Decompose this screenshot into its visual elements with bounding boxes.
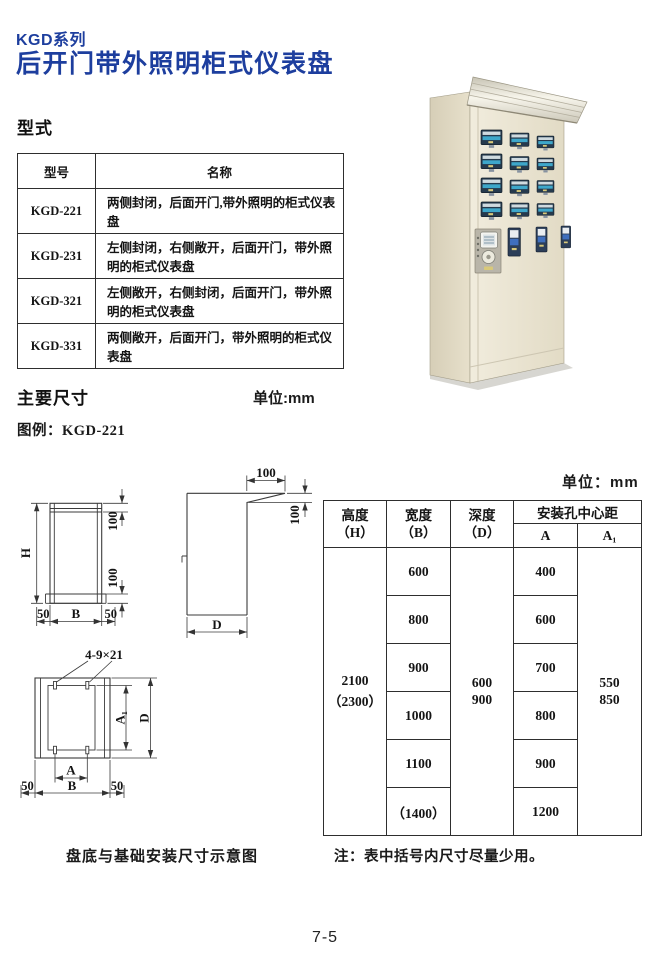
dim-table-header-row: 高度（H） 宽度（B） 深度（D） 安装孔中心距	[324, 501, 642, 524]
dim-label-50: 50	[105, 607, 118, 621]
a1-col-header: A₁	[578, 524, 642, 548]
width-col-header: 宽度（B）	[387, 501, 451, 548]
a-cell: 600	[514, 596, 578, 644]
dim-label-100: 100	[287, 505, 302, 525]
width-cell: 900	[387, 644, 451, 692]
recorder-instrument	[475, 229, 501, 273]
legend-label: 图例：KGD-221	[17, 419, 125, 440]
a-col-header: A	[514, 524, 578, 548]
table-row: KGD-331 两侧敞开，后面开门，带外照明的柜式仪表盘	[18, 324, 344, 369]
dim-label-B: B	[68, 778, 77, 793]
dim-label-50: 50	[37, 607, 50, 621]
dim-label-100: 100	[105, 511, 120, 531]
dim-label-100: 100	[105, 568, 120, 588]
width-cell: 1000	[387, 692, 451, 740]
a-cell: 900	[514, 740, 578, 788]
type-section-heading: 型式	[17, 114, 53, 139]
dim-label-B: B	[71, 606, 80, 621]
unit-label: 单位:mm	[253, 387, 315, 408]
dim-label-50: 50	[21, 779, 34, 793]
name-cell: 左侧敞开，右侧封闭，后面开门，带外照明的柜式仪表盘	[96, 279, 344, 324]
front-view-drawing: H 100 100 50 B 50	[18, 489, 128, 626]
plan-view-drawing: 4-9×21 A₁ D A 50 B 50	[21, 647, 157, 798]
width-cell: （1400）	[387, 788, 451, 836]
page-title: 后开门带外照明柜式仪表盘	[16, 44, 334, 80]
width-cell: 800	[387, 596, 451, 644]
name-cell: 两侧封闭，后面开门,带外照明的柜式仪表盘	[96, 189, 344, 234]
dim-label-H: H	[18, 548, 33, 558]
table-note: 注：表中括号内尺寸尽量少用。	[334, 845, 544, 866]
a-cell: 1200	[514, 788, 578, 836]
width-cell: 1100	[387, 740, 451, 788]
table-row: KGD-221 两侧封闭，后面开门,带外照明的柜式仪表盘	[18, 189, 344, 234]
model-cell: KGD-321	[18, 279, 96, 324]
depth-values-cell: 600900	[451, 548, 514, 836]
model-table: 型号 名称 KGD-221 两侧封闭，后面开门,带外照明的柜式仪表盘 KGD-2…	[17, 153, 344, 369]
model-cell: KGD-331	[18, 324, 96, 369]
catalog-page: { "page": { "series_title": "KGD系列", "ma…	[0, 0, 650, 977]
dim-label-D: D	[212, 617, 221, 632]
a1-values-cell: 550850	[578, 548, 642, 836]
table-row: KGD-231 左侧封闭，右侧敞开，后面开门，带外照明的柜式仪表盘	[18, 234, 344, 279]
name-cell: 左侧封闭，右侧敞开，后面开门，带外照明的柜式仪表盘	[96, 234, 344, 279]
dim-label-D: D	[137, 713, 152, 722]
table-row: KGD-321 左侧敞开，右侧封闭，后面开门，带外照明的柜式仪表盘	[18, 279, 344, 324]
a-cell: 800	[514, 692, 578, 740]
dimension-drawings: H 100 100 50 B 50 100 100 D	[0, 440, 330, 860]
model-cell: KGD-221	[18, 189, 96, 234]
table-row: 2100（2300） 600 600900 400 550850	[324, 548, 642, 596]
height-col-header: 高度（H）	[324, 501, 387, 548]
width-cell: 600	[387, 548, 451, 596]
dim-label-50: 50	[111, 779, 124, 793]
dim-label-100: 100	[256, 465, 276, 480]
drawing-caption: 盘底与基础安装尺寸示意图	[66, 845, 258, 866]
a-cell: 400	[514, 548, 578, 596]
model-table-header-row: 型号 名称	[18, 154, 344, 189]
hole-spec-label: 4-9×21	[85, 647, 123, 662]
hole-span-header: 安装孔中心距	[514, 501, 642, 524]
a-cell: 700	[514, 644, 578, 692]
dimension-table: 高度（H） 宽度（B） 深度（D） 安装孔中心距 A A₁ 2100（2300）…	[323, 500, 642, 836]
name-col-header: 名称	[96, 154, 344, 189]
model-cell: KGD-231	[18, 234, 96, 279]
cabinet-product-photo	[390, 70, 645, 395]
cabinet-left-side	[430, 92, 470, 383]
dims-section-heading: 主要尺寸	[17, 384, 89, 409]
model-col-header: 型号	[18, 154, 96, 189]
dim-label-A1: A₁	[113, 711, 128, 724]
side-view-drawing: 100 100 D	[182, 465, 312, 638]
depth-col-header: 深度（D）	[451, 501, 514, 548]
name-cell: 两侧敞开，后面开门，带外照明的柜式仪表盘	[96, 324, 344, 369]
page-number: 7-5	[0, 929, 650, 947]
height-values-cell: 2100（2300）	[324, 548, 387, 836]
dim-label-A: A	[66, 763, 76, 778]
table-unit-label: 单位：mm	[562, 471, 639, 492]
